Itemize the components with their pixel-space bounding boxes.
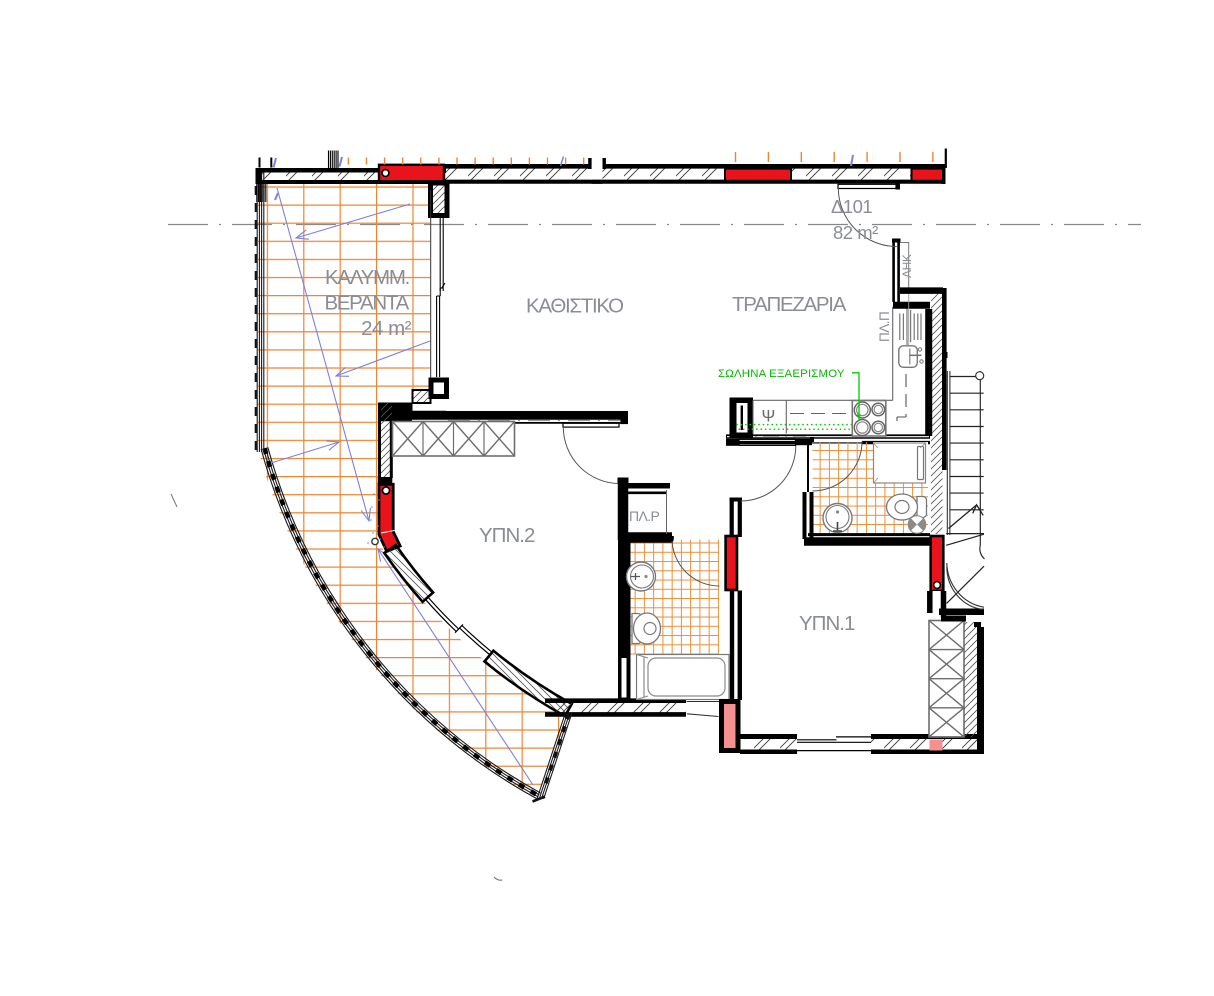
svg-text:ΤΡΑΠΕΖΑΡΙΑ: ΤΡΑΠΕΖΑΡΙΑ — [732, 293, 847, 316]
svg-text:24 m²: 24 m² — [361, 317, 412, 340]
svg-text:Δ101: Δ101 — [831, 196, 872, 217]
svg-text:ΣΩΛΗΝΑ ΕΞΑΕΡΙΣΜΟΥ: ΣΩΛΗΝΑ ΕΞΑΕΡΙΣΜΟΥ — [718, 368, 845, 380]
svg-text:ΒΕΡΑΝΤΑ: ΒΕΡΑΝΤΑ — [324, 292, 409, 315]
svg-text:ΥΠΝ.1: ΥΠΝ.1 — [799, 612, 855, 635]
svg-text:ΠΛ.Π: ΠΛ.Π — [877, 312, 892, 342]
svg-text:ΚΑΛΥΜΜ.: ΚΑΛΥΜΜ. — [325, 266, 409, 289]
svg-text:ΠΛ.Ρ: ΠΛ.Ρ — [629, 508, 660, 524]
svg-text:ΚΑΘΙΣΤΙΚΟ: ΚΑΘΙΣΤΙΚΟ — [526, 295, 623, 318]
svg-text:ΥΠΝ.2: ΥΠΝ.2 — [479, 524, 535, 547]
svg-text:ΛΗΚ: ΛΗΚ — [900, 254, 914, 278]
svg-text:Ψ: Ψ — [762, 408, 776, 426]
svg-text:82 m²: 82 m² — [833, 222, 878, 243]
